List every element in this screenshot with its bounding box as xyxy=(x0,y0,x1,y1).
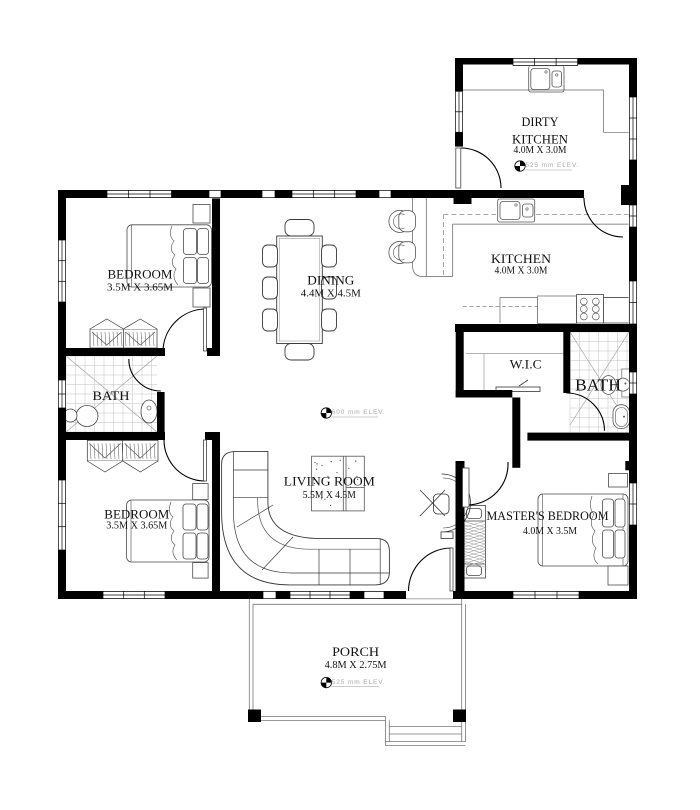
svg-text:5.5M X 4.5M: 5.5M X 4.5M xyxy=(303,489,356,501)
svg-text:525 mm ELEV.: 525 mm ELEV. xyxy=(332,679,386,686)
svg-text:BEDROOM: BEDROOM xyxy=(108,268,173,282)
svg-text:4.8M X 2.75M: 4.8M X 2.75M xyxy=(325,659,387,671)
svg-text:4.4M X 4.5M: 4.4M X 4.5M xyxy=(301,288,361,300)
svg-text:525 mm ELEV.: 525 mm ELEV. xyxy=(525,162,579,169)
svg-text:W.I.C: W.I.C xyxy=(510,358,542,372)
svg-text:MASTER'S BEDROOM: MASTER'S BEDROOM xyxy=(487,509,609,523)
svg-text:4.0M X 3.0M: 4.0M X 3.0M xyxy=(514,144,567,156)
svg-text:600 mm ELEV.: 600 mm ELEV. xyxy=(332,409,386,416)
svg-text:BATH: BATH xyxy=(575,376,621,395)
svg-text:3.5M X 3.65M: 3.5M X 3.65M xyxy=(106,519,167,531)
svg-text:BATH: BATH xyxy=(93,389,130,403)
svg-text:4.0M X 3.5M: 4.0M X 3.5M xyxy=(523,525,577,537)
svg-text:PORCH: PORCH xyxy=(332,645,379,659)
svg-text:LIVING ROOM: LIVING ROOM xyxy=(284,474,375,488)
svg-text:4.0M X 3.0M: 4.0M X 3.0M xyxy=(495,265,548,277)
svg-text:DIRTY: DIRTY xyxy=(522,115,559,129)
svg-text:3.5M X 3.65M: 3.5M X 3.65M xyxy=(107,282,173,294)
svg-text:DINING: DINING xyxy=(307,274,354,288)
